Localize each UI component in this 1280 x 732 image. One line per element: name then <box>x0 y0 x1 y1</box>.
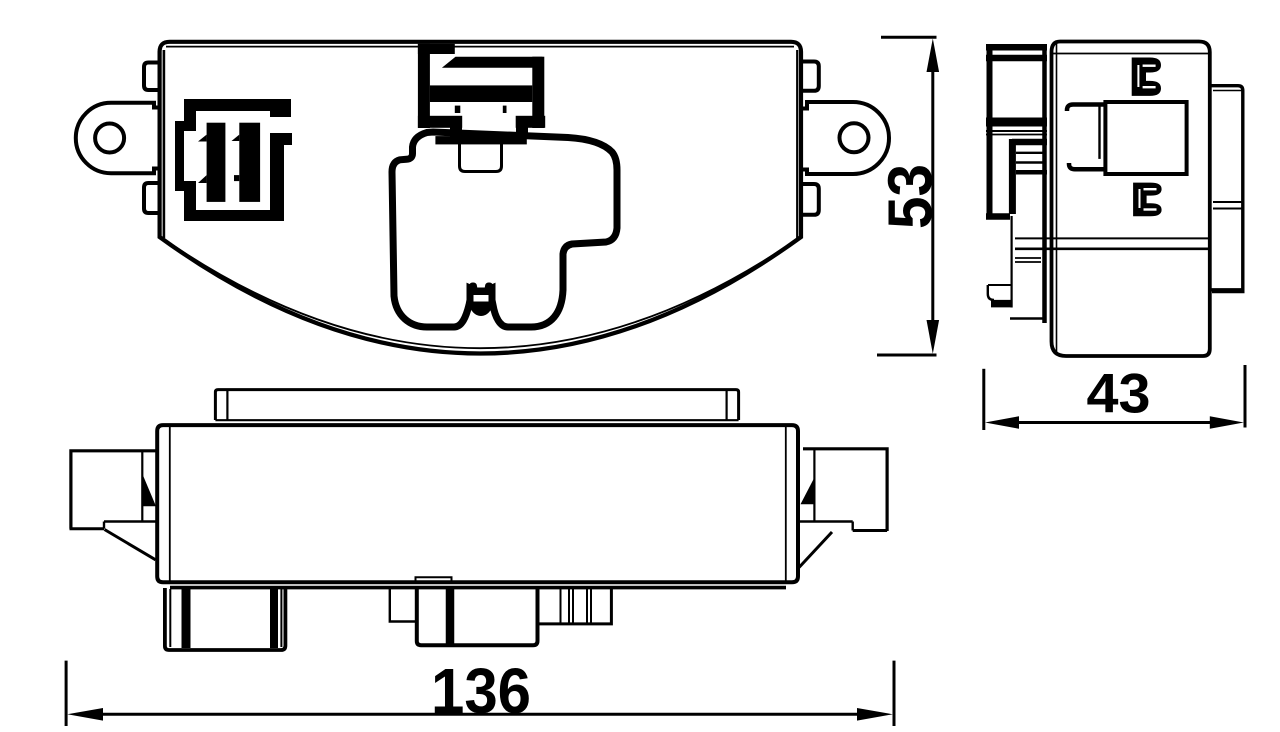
svg-text:43: 43 <box>1087 361 1151 424</box>
svg-text:53: 53 <box>877 164 946 229</box>
svg-text:136: 136 <box>431 655 531 727</box>
